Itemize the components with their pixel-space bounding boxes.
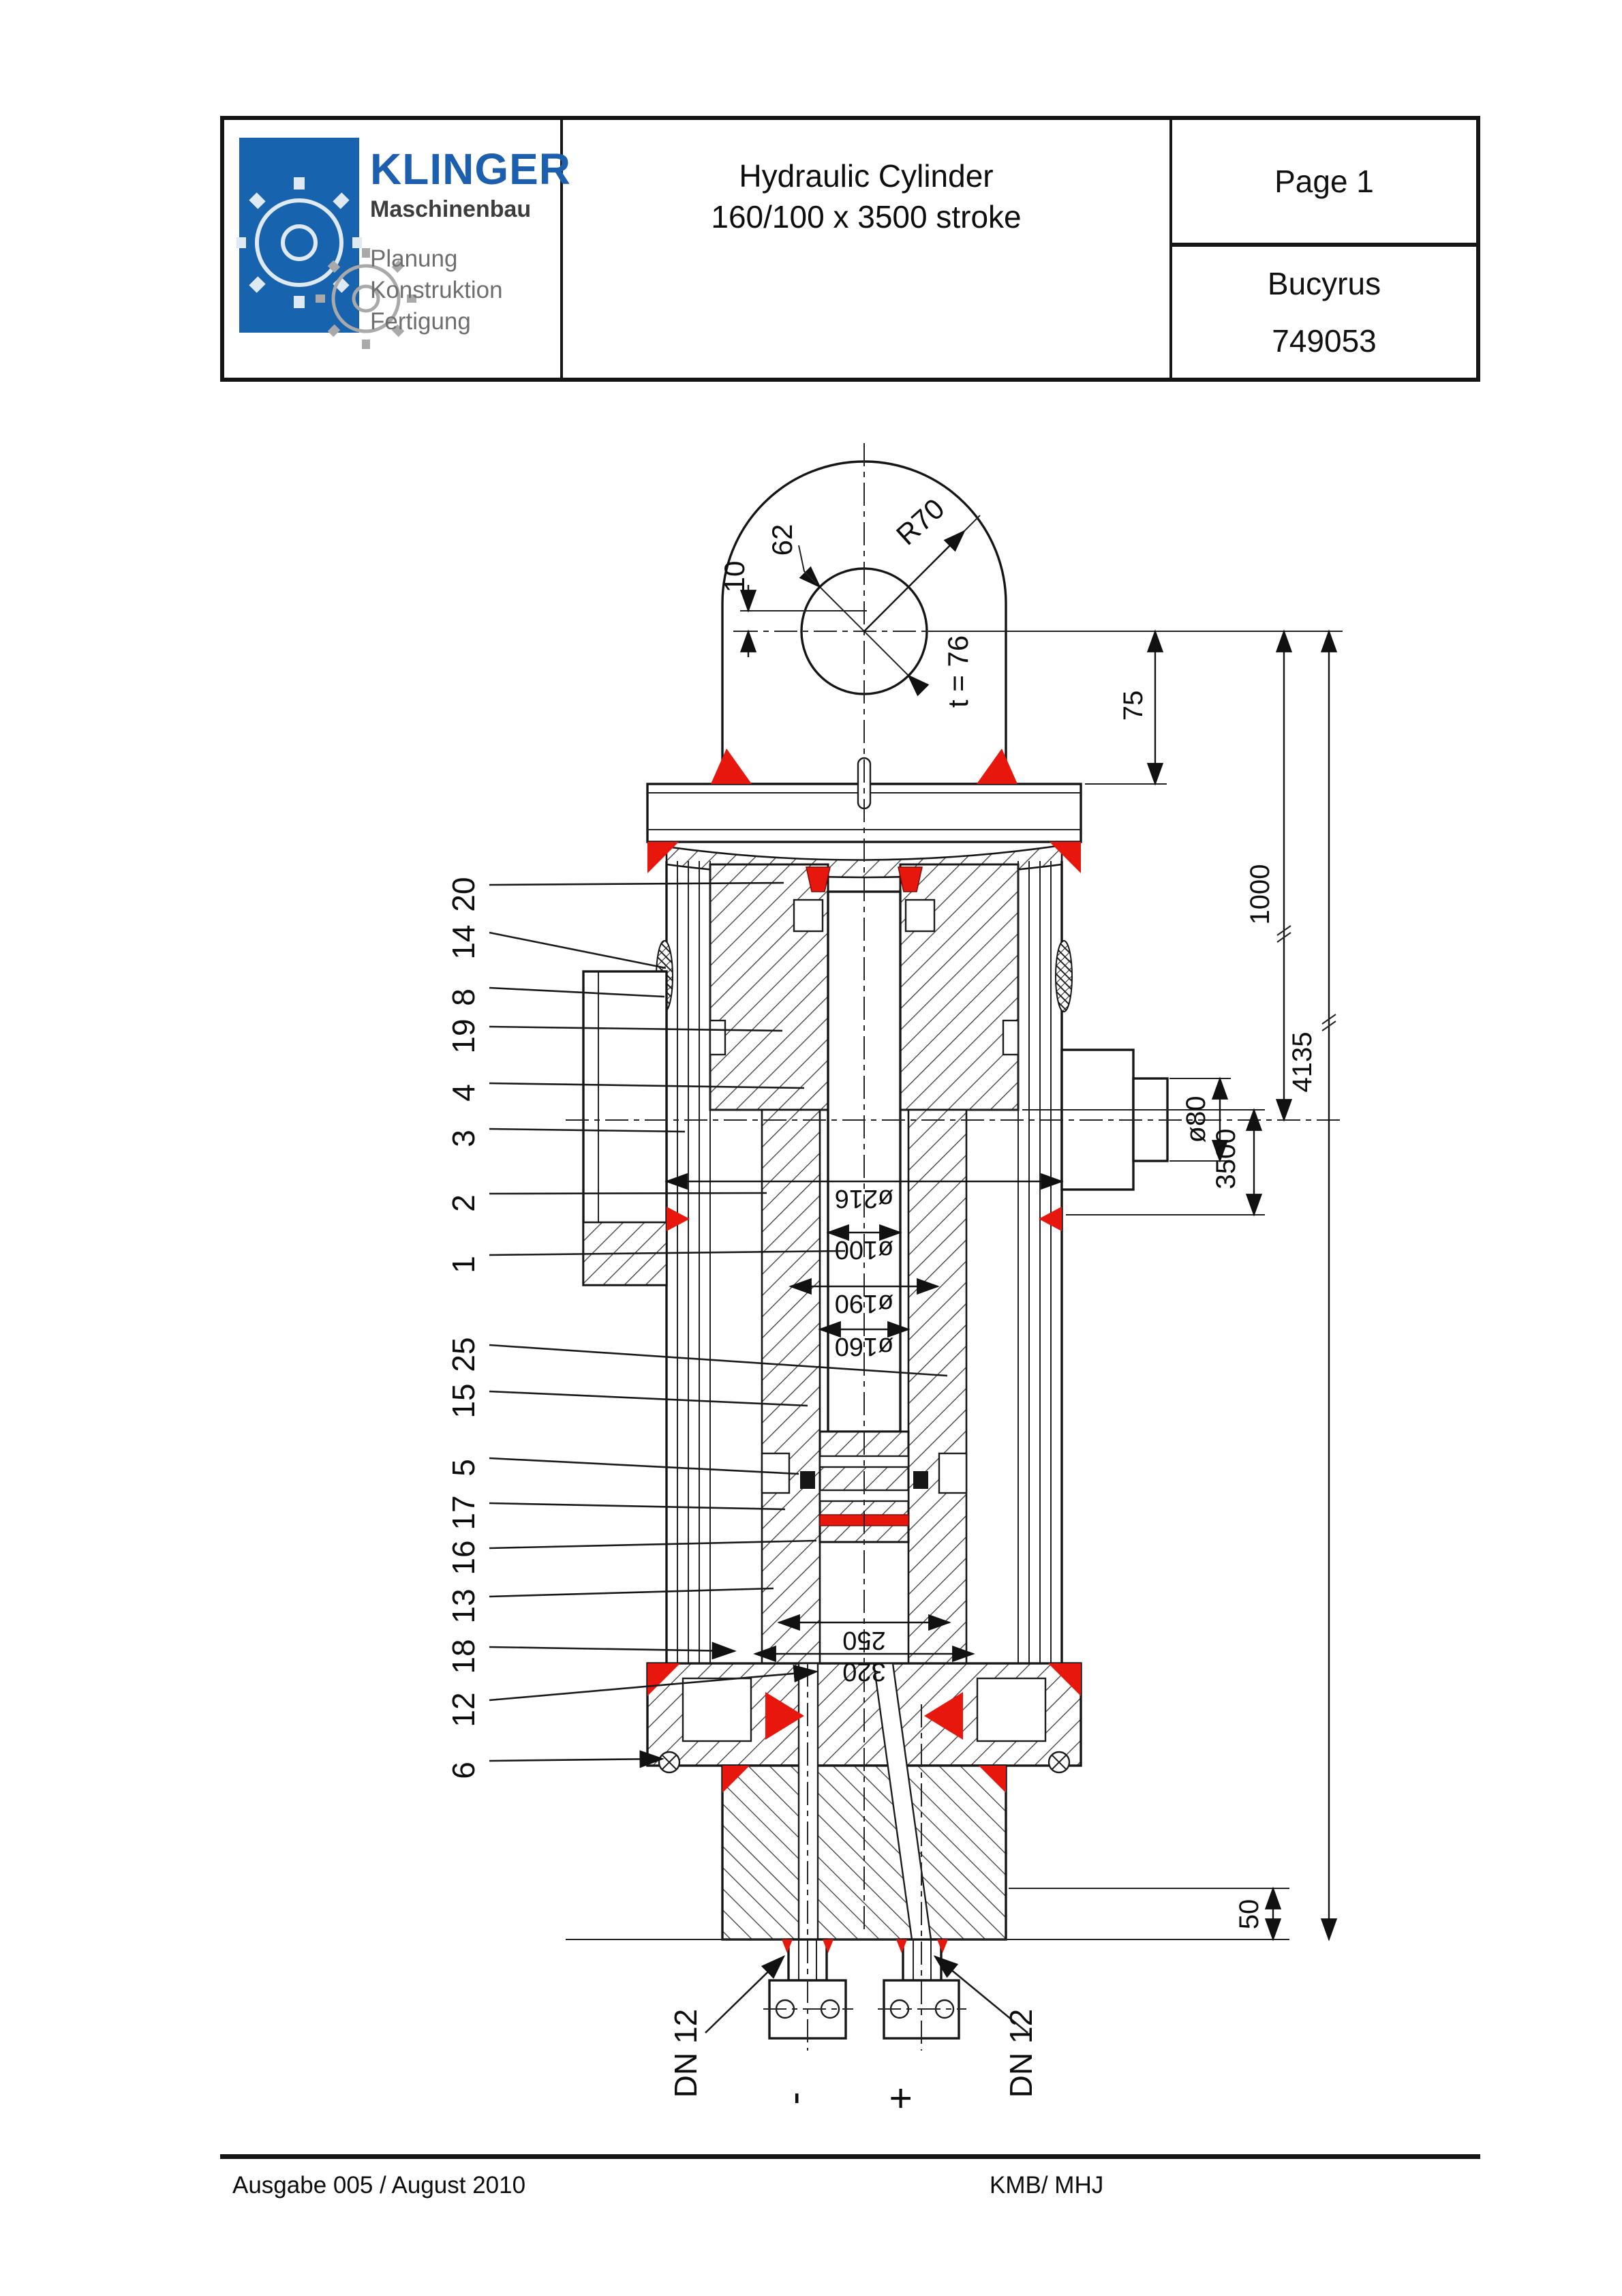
part-number-label: 3 bbox=[446, 1130, 481, 1147]
cylinder-section-drawing: 6210R70t = 7675100035004135ø8050ø216ø100… bbox=[0, 0, 1622, 2296]
part-leader-line bbox=[489, 1759, 662, 1761]
dimension-label: DN 12 bbox=[1003, 2009, 1039, 2098]
part-leader-line bbox=[489, 1503, 785, 1509]
dimension-label: 1000 bbox=[1245, 864, 1275, 925]
footer-edition: Ausgabe 005 / August 2010 bbox=[232, 2172, 525, 2199]
plug-left bbox=[659, 1752, 679, 1772]
part-number-label: 16 bbox=[446, 1540, 481, 1575]
dimension-label: 4135 bbox=[1287, 1032, 1317, 1093]
plug-right bbox=[1049, 1752, 1069, 1772]
part-leader-line bbox=[489, 1647, 735, 1651]
part-leader-line bbox=[489, 1588, 774, 1597]
part-number-label: 5 bbox=[446, 1459, 481, 1477]
dimension-label: DN 12 bbox=[668, 2009, 703, 2098]
part-number-label: 17 bbox=[446, 1495, 481, 1530]
gland-seal-right bbox=[1056, 941, 1072, 1012]
dimension-label: ø160 bbox=[835, 1332, 894, 1361]
trunnion-left-plate bbox=[583, 971, 667, 1285]
dimension-label: 75 bbox=[1118, 691, 1148, 721]
part-number-label: 25 bbox=[446, 1337, 481, 1372]
piston-backup-ring-left bbox=[800, 1471, 815, 1489]
part-number-label: 4 bbox=[446, 1084, 481, 1102]
part-leader-line bbox=[489, 933, 666, 968]
part-number-label: 12 bbox=[446, 1692, 481, 1727]
dimension-label: + bbox=[878, 2087, 923, 2110]
dimension-label: t = 76 bbox=[942, 635, 974, 708]
part-number-label: 6 bbox=[446, 1762, 481, 1779]
part-number-label: 14 bbox=[446, 924, 481, 959]
part-number-label: 13 bbox=[446, 1588, 481, 1623]
piston-backup-ring-right bbox=[913, 1471, 928, 1489]
dimension-label: ø216 bbox=[835, 1184, 894, 1213]
drawing-sheet: KLINGER Maschinenbau Planung Konstruktio… bbox=[0, 0, 1622, 2296]
part-leader-line bbox=[489, 1391, 808, 1406]
dimension-label: 62 bbox=[766, 524, 798, 556]
part-number-label: 19 bbox=[446, 1018, 481, 1053]
part-leader-line bbox=[489, 1458, 799, 1474]
dimension-label: - bbox=[772, 2091, 816, 2104]
dimension-label: ø80 bbox=[1181, 1096, 1211, 1143]
footer-rule bbox=[220, 2154, 1480, 2159]
dimension-label: 10 bbox=[718, 561, 750, 593]
footer-initials: KMB/ MHJ bbox=[990, 2172, 1103, 2199]
dimension-label: 3500 bbox=[1211, 1129, 1241, 1190]
part-number-label: 18 bbox=[446, 1639, 481, 1674]
dimension-label: ø100 bbox=[835, 1235, 894, 1264]
part-number-label: 8 bbox=[446, 988, 481, 1006]
part-number-label: 20 bbox=[446, 877, 481, 911]
dimension-label: 320 bbox=[842, 1657, 885, 1686]
dimension-label: 50 bbox=[1234, 1899, 1264, 1930]
part-leader-line bbox=[489, 1193, 767, 1194]
bottom-cap bbox=[566, 1663, 1289, 1939]
dimension-label: ø190 bbox=[835, 1289, 894, 1318]
part-number-label: 2 bbox=[446, 1194, 481, 1212]
part-number-label: 15 bbox=[446, 1383, 481, 1418]
part-number-label: 1 bbox=[446, 1256, 481, 1273]
dimension-label: 250 bbox=[842, 1626, 885, 1655]
